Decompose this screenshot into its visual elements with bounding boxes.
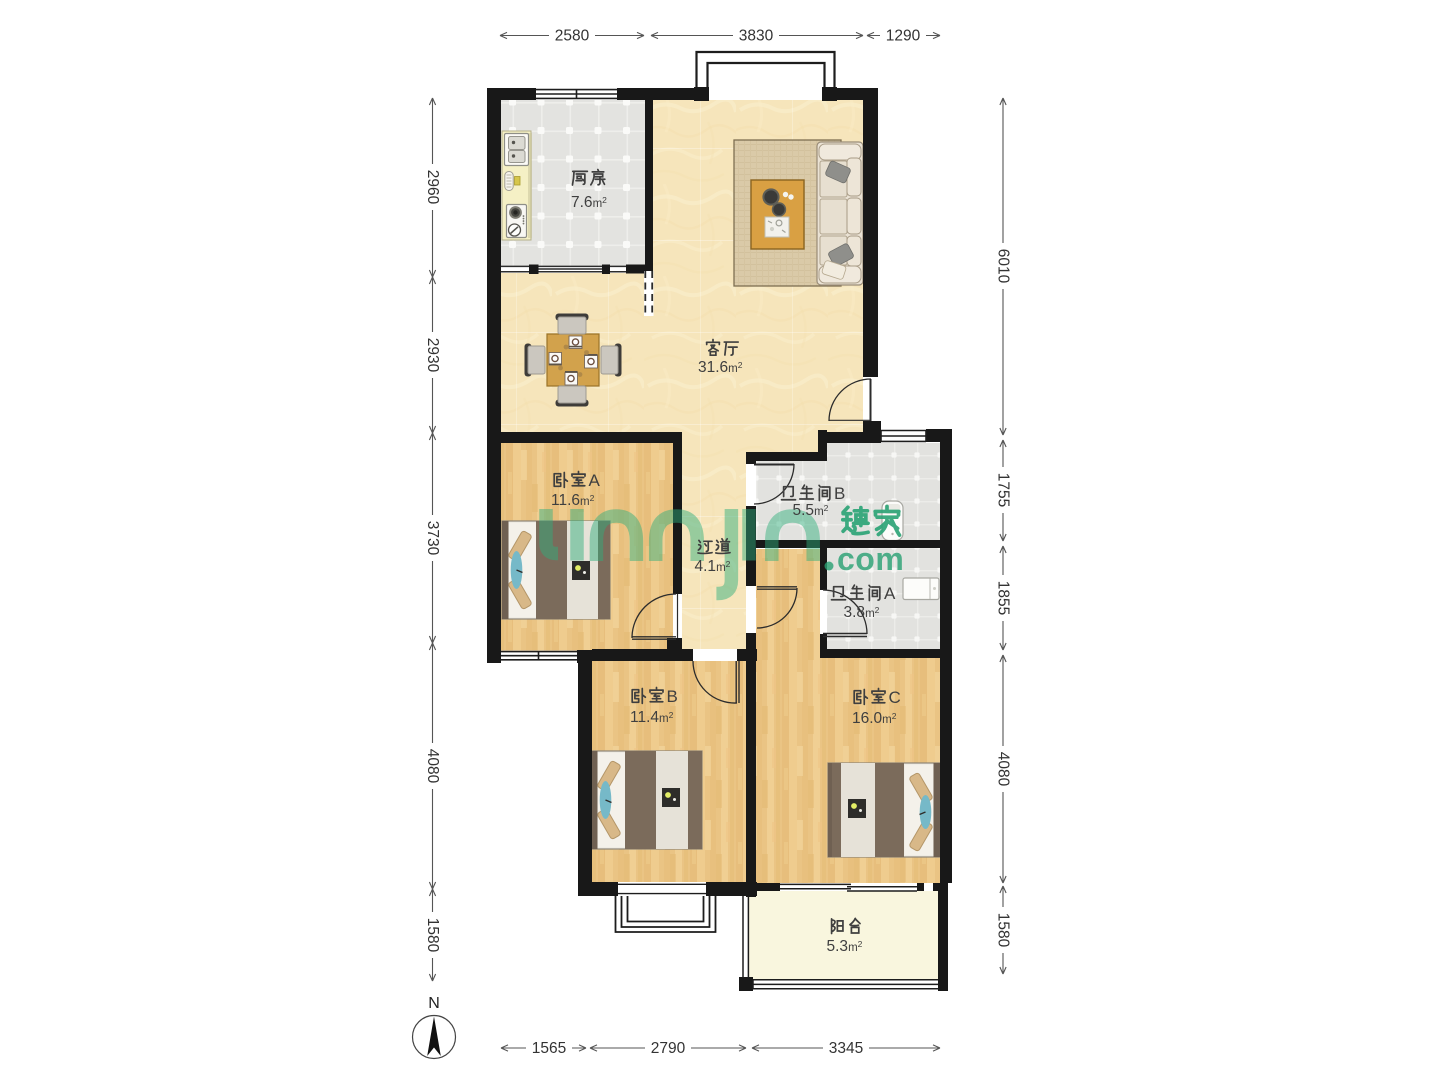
svg-text:4080: 4080: [995, 752, 1012, 787]
svg-text:B: B: [667, 687, 678, 706]
svg-text:A: A: [884, 584, 896, 603]
svg-text:1290: 1290: [886, 28, 921, 45]
svg-text:1565: 1565: [532, 1040, 566, 1057]
svg-text:2930: 2930: [424, 338, 441, 373]
svg-text:N: N: [428, 995, 440, 1012]
svg-text:7.6m2: 7.6m2: [571, 194, 607, 211]
svg-text:com: com: [837, 541, 904, 577]
svg-text:4080: 4080: [424, 749, 441, 784]
svg-text:1580: 1580: [995, 913, 1012, 948]
svg-text:B: B: [834, 484, 845, 503]
svg-text:1755: 1755: [995, 473, 1012, 507]
svg-text:2960: 2960: [424, 170, 441, 205]
svg-text:A: A: [589, 471, 601, 490]
svg-text:5.5m2: 5.5m2: [793, 502, 829, 519]
svg-text:2580: 2580: [555, 28, 590, 45]
svg-text:4.1m2: 4.1m2: [695, 558, 731, 575]
svg-text:3830: 3830: [739, 28, 774, 45]
svg-text:3730: 3730: [424, 521, 441, 556]
svg-text:6010: 6010: [995, 249, 1012, 284]
svg-text:C: C: [889, 688, 901, 707]
svg-text:3345: 3345: [829, 1040, 863, 1057]
svg-text:3.8m2: 3.8m2: [844, 604, 880, 621]
svg-text:1855: 1855: [995, 581, 1012, 615]
svg-text:1580: 1580: [424, 918, 441, 953]
svg-text:2790: 2790: [651, 1040, 686, 1057]
svg-text:5.3m2: 5.3m2: [827, 938, 863, 955]
